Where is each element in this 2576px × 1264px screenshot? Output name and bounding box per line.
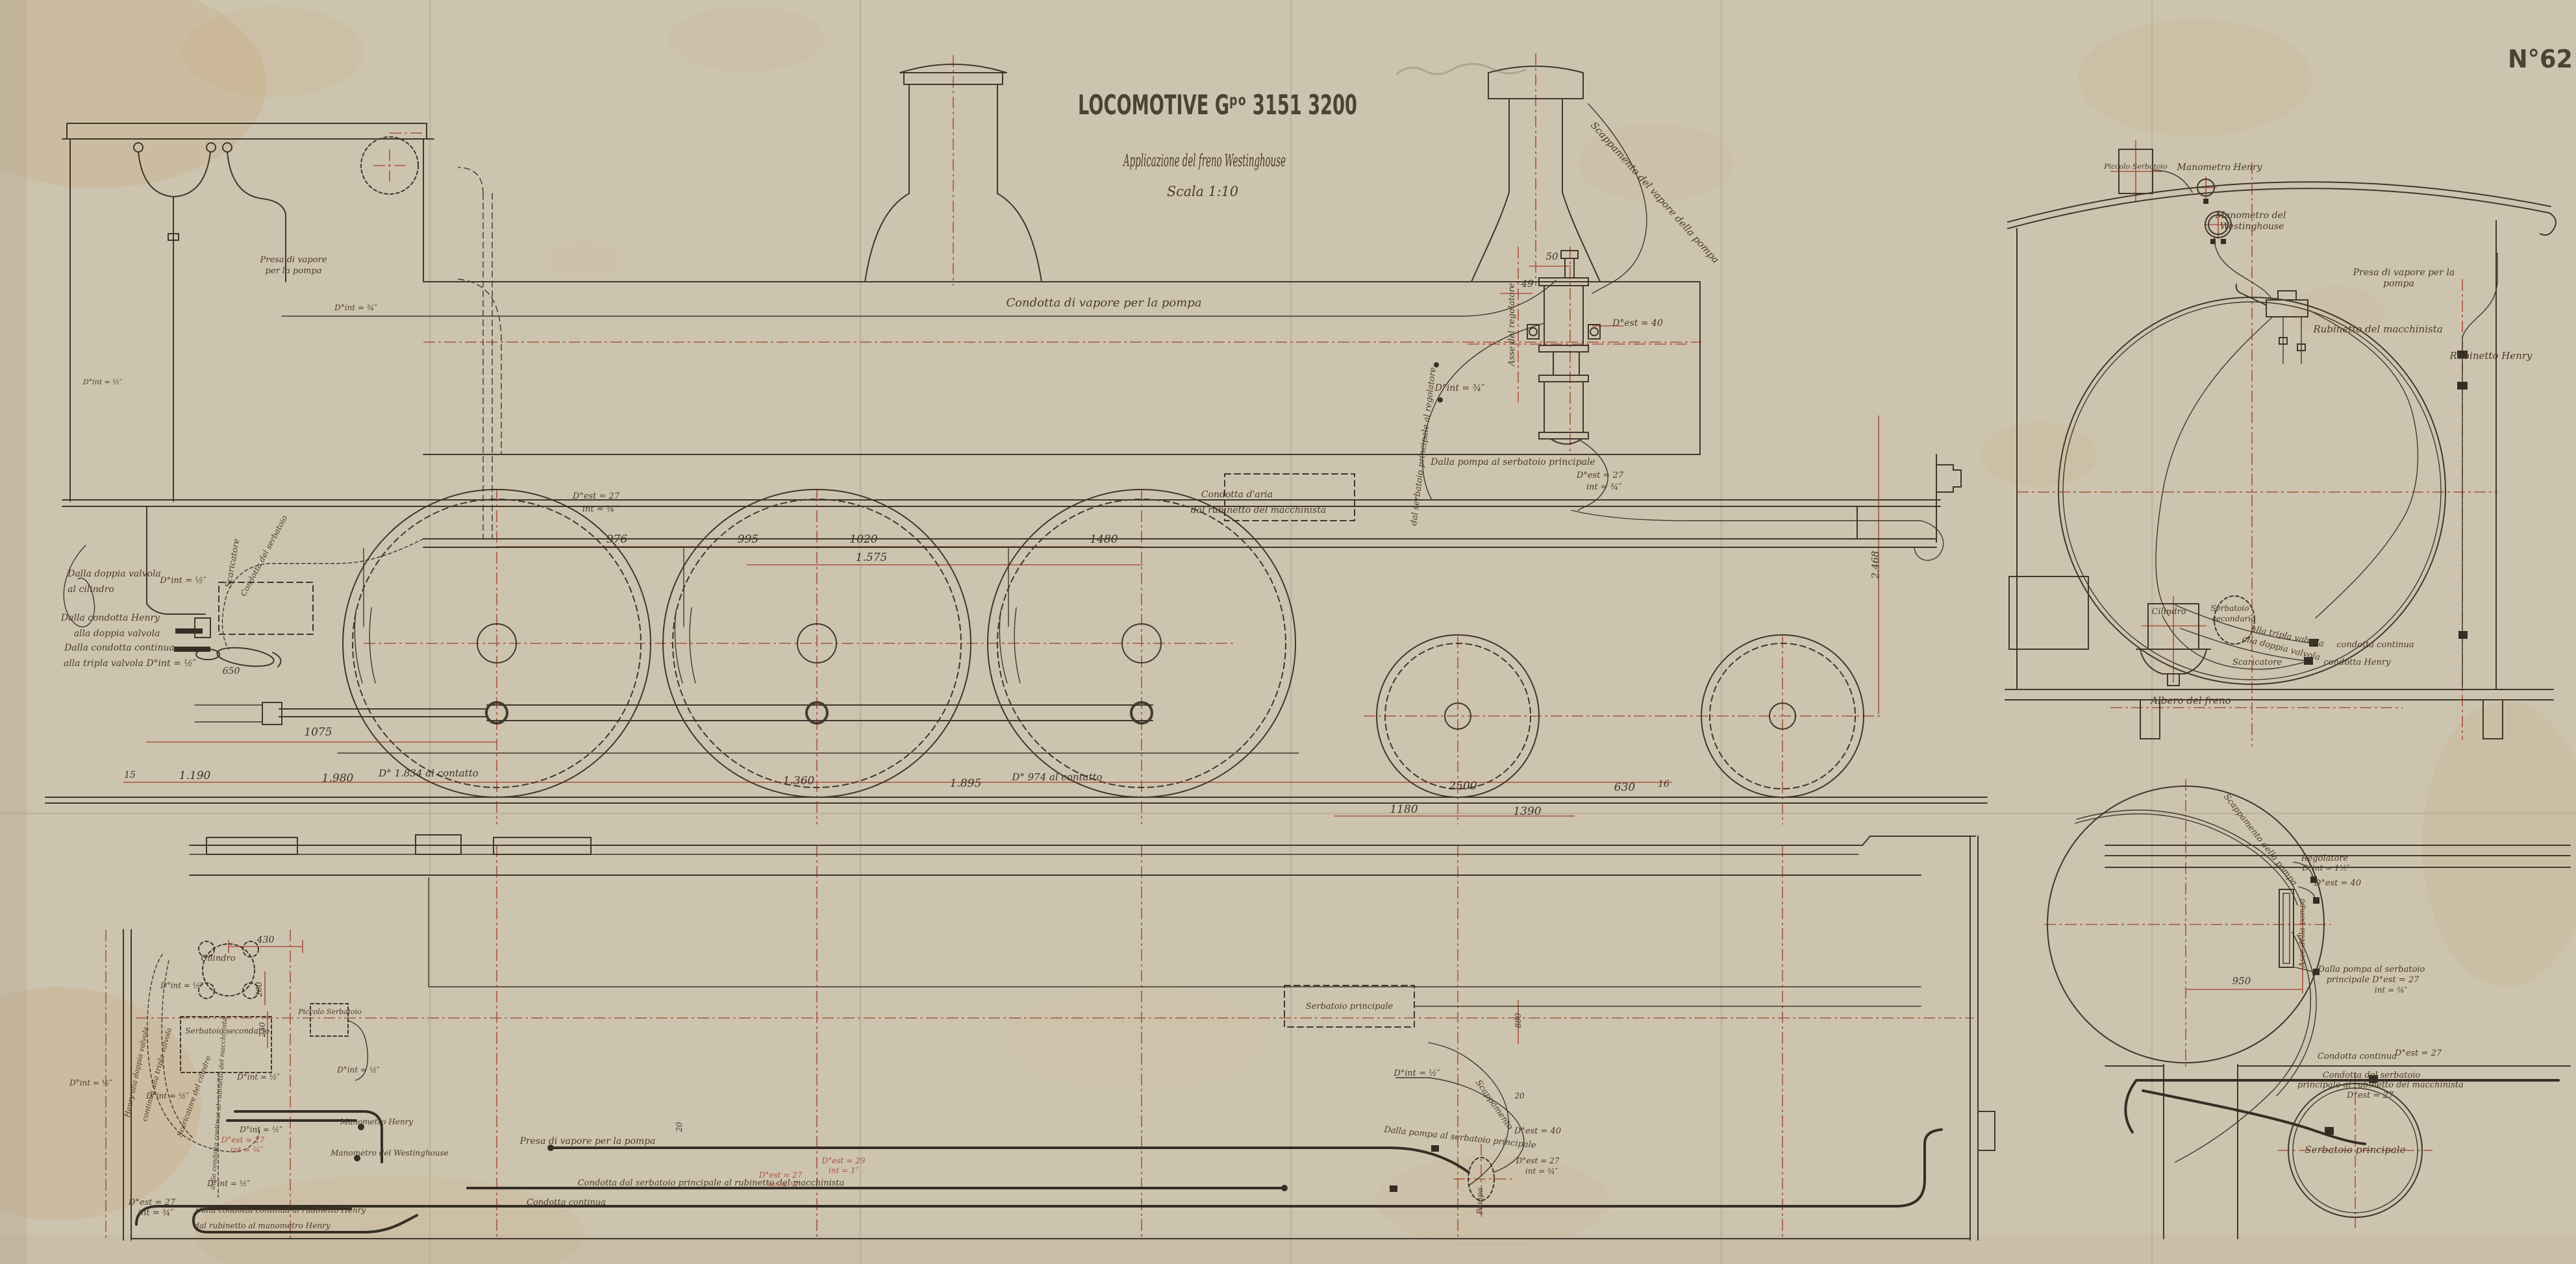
- annotation-label: int = ¾″: [138, 1208, 174, 1218]
- annotation-label: Asse della pompa: [2297, 898, 2307, 968]
- annotation-label: Piccolo Serbatoio: [297, 1008, 362, 1016]
- annotation-label: Condotta d'aria: [1201, 489, 1273, 500]
- annotation-label: int = ¾″: [582, 504, 618, 514]
- annotation-label: D°est = 40: [2314, 878, 2361, 888]
- annotation-label: D°int = ½″: [69, 1078, 112, 1087]
- annotation-label: Regolatore: [2301, 854, 2349, 863]
- annotation-label: Pompa: [1475, 1187, 1484, 1215]
- annotation-label: condotta continua: [2336, 640, 2414, 650]
- annotation-label: D°est = 27: [221, 1135, 265, 1145]
- annotation-label: dal rubinetto del macchinista: [1191, 505, 1326, 515]
- annotation-label: Dalla condotta continua: [64, 643, 175, 653]
- sheet-number: N°62: [2508, 45, 2573, 73]
- annotation-label: 1.360: [783, 775, 815, 787]
- annotation-label: 1.190: [179, 769, 211, 782]
- annotation-label: 976: [606, 533, 628, 546]
- annotation-label: 1180: [1390, 803, 1418, 816]
- annotation-label: 16: [1658, 779, 1669, 789]
- annotation-label: 1480: [1090, 533, 1118, 546]
- annotation-label: 1.895: [950, 777, 982, 790]
- annotation-label: D°int = ¾″: [1434, 383, 1486, 393]
- annotation-label: Presa di vapore per la: [2353, 267, 2455, 278]
- annotation-label: Presa di vapore per la pompa: [519, 1136, 656, 1146]
- annotation-label: Serbatoio principale: [2305, 1144, 2405, 1156]
- annotation-label: D°int = ½″: [159, 576, 206, 586]
- annotation-label: Manometro Henry: [340, 1117, 414, 1126]
- annotation-label: 880: [1514, 1013, 1523, 1028]
- annotation-label: D°int = ½″: [239, 1125, 282, 1134]
- annotation-label: 995: [738, 533, 758, 546]
- annotation-label: 1390: [1513, 805, 1541, 818]
- annotation-label: D°int = ½″: [236, 1072, 280, 1082]
- annotation-label: 2.468: [1869, 551, 1881, 580]
- annotation-label: D°est = 27: [1576, 471, 1624, 480]
- annotation-label: 430: [256, 935, 275, 945]
- annotation-label: 20: [1514, 1091, 1525, 1100]
- annotation-label: Asse del regolatore: [1507, 283, 1517, 367]
- annotation-label: 1075: [304, 726, 332, 739]
- annotation-label: 2500: [1448, 780, 1477, 793]
- annotation-label: Condotta continua: [2318, 1052, 2397, 1061]
- annotation-label: Dalla pompa al serbatoio principale: [1430, 457, 1595, 467]
- annotation-label: D°est = 40: [1514, 1126, 1561, 1136]
- annotation-label: al cilindro: [68, 584, 114, 595]
- annotation-label: int = ¾″: [1525, 1167, 1558, 1176]
- annotation-label: principale al rubinetto del macchinista: [2297, 1080, 2464, 1090]
- annotation-label: D°est = 29: [821, 1156, 866, 1165]
- annotation-label: D°int = ¾″: [334, 303, 377, 312]
- annotation-label: Manometro del: [2215, 210, 2286, 221]
- annotation-label: 1.575: [856, 551, 888, 564]
- annotation-label: Westinghouse: [2220, 221, 2284, 232]
- annotation-label: Presa di vapore: [260, 255, 327, 265]
- annotation-label: Serbatoio: [2210, 604, 2249, 613]
- annotation-label: Dalla pompa al serbatoio: [2318, 965, 2425, 974]
- annotation-label: Rubinetto del macchinista: [2312, 323, 2442, 335]
- annotation-label: D° 974 al contatto: [1011, 771, 1102, 783]
- annotation-label: Dalla condotta Henry: [60, 613, 160, 623]
- annotation-label: per la pompa: [266, 266, 322, 276]
- annotation-label: D°est = 27: [758, 1171, 803, 1180]
- annotation-label: int = ¾″: [2375, 985, 2408, 995]
- annotation-label: alla tripla valvola D°int = ½″: [64, 658, 197, 669]
- annotation-label: Rubinetto Henry: [2449, 350, 2532, 362]
- annotation-label: Condotta di vapore per la pompa: [1006, 296, 1201, 310]
- drawing-scale: Scala 1:10: [1167, 184, 1238, 199]
- annotation-label: Condotta del serbatoio: [2323, 1071, 2421, 1080]
- annotation-label: 1020: [849, 533, 877, 546]
- annotation-label: 950: [2232, 975, 2251, 987]
- annotation-label: pompa: [2383, 279, 2414, 289]
- annotation-label: 650: [223, 666, 240, 676]
- annotation-label: Dalla doppia valvola: [67, 569, 161, 579]
- annotation-label: D°est = 27: [572, 491, 620, 501]
- annotation-label: int = ¾″: [1586, 482, 1622, 492]
- annotation-label: condotta Henry: [2324, 658, 2392, 667]
- annotation-label: D°int = 1½″: [2301, 863, 2350, 873]
- annotation-label: 15: [124, 770, 136, 780]
- drawing-title: LOCOMOTIVE Gᵖᵒ 3151 3200: [1078, 89, 1357, 121]
- technical-drawing-sheet: N°62 LOCOMOTIVE Gᵖᵒ 3151 3200 Applicazio…: [0, 0, 2576, 1264]
- annotation-label: Condotta continua: [527, 1198, 606, 1208]
- annotation-label: Cilindro: [2151, 607, 2186, 617]
- annotation-label: D°int = ½″: [336, 1065, 380, 1074]
- annotation-label: D°int = ½″: [160, 981, 203, 990]
- annotation-label: int = ¾″: [768, 1180, 801, 1189]
- annotation-label: Manometro del Westinghouse: [330, 1148, 449, 1158]
- annotation-label: 1.980: [322, 772, 354, 785]
- annotation-label: D°est = 40: [1612, 318, 1663, 328]
- annotation-label: Manometro Henry: [2177, 162, 2263, 173]
- annotation-label: D°est = 27: [2394, 1048, 2442, 1058]
- annotation-label: Dalla condotta continua al rubinetto Hen…: [195, 1206, 366, 1215]
- annotation-label: 630: [1614, 781, 1636, 794]
- annotation-label: Serbatoio principale: [1306, 1002, 1394, 1011]
- drawing-subtitle: Applicazione del freno Westinghouse: [1123, 151, 1286, 171]
- annotation-label: 20: [675, 1122, 684, 1133]
- annotation-label: D°int = ½″: [82, 378, 123, 386]
- annotation-label: 200: [255, 982, 264, 997]
- annotation-label: D°est = 27: [2346, 1091, 2394, 1100]
- annotation-label: secondario: [2212, 614, 2256, 623]
- annotation-label: Albero del freno: [2149, 695, 2231, 706]
- annotation-label: principale D°est = 27: [2327, 975, 2420, 985]
- annotation-label: dal rubinetto al manometro Henry: [194, 1221, 330, 1230]
- annotation-label: Piccolo Serbatoio: [2103, 162, 2168, 171]
- annotation-label: 50: [1545, 251, 1558, 262]
- annotation-label: Scaricatore: [2232, 658, 2282, 667]
- annotation-label: Cilindro: [201, 954, 235, 963]
- annotation-label: D°int = ½″: [1393, 1069, 1440, 1078]
- annotation-label: int = ¾″: [231, 1145, 264, 1154]
- annotation-label: int = 1″: [829, 1166, 859, 1175]
- annotation-label: alla doppia valvola: [74, 628, 160, 639]
- annotation-label: D°est = 27: [128, 1198, 176, 1208]
- annotation-label: 49: [1520, 278, 1534, 290]
- annotation-label: D° 1.834 al contatto: [378, 767, 479, 779]
- annotation-label: Condotta dal serbatoio principale al rub…: [578, 1178, 845, 1188]
- annotation-label: D°est = 27: [1516, 1156, 1560, 1165]
